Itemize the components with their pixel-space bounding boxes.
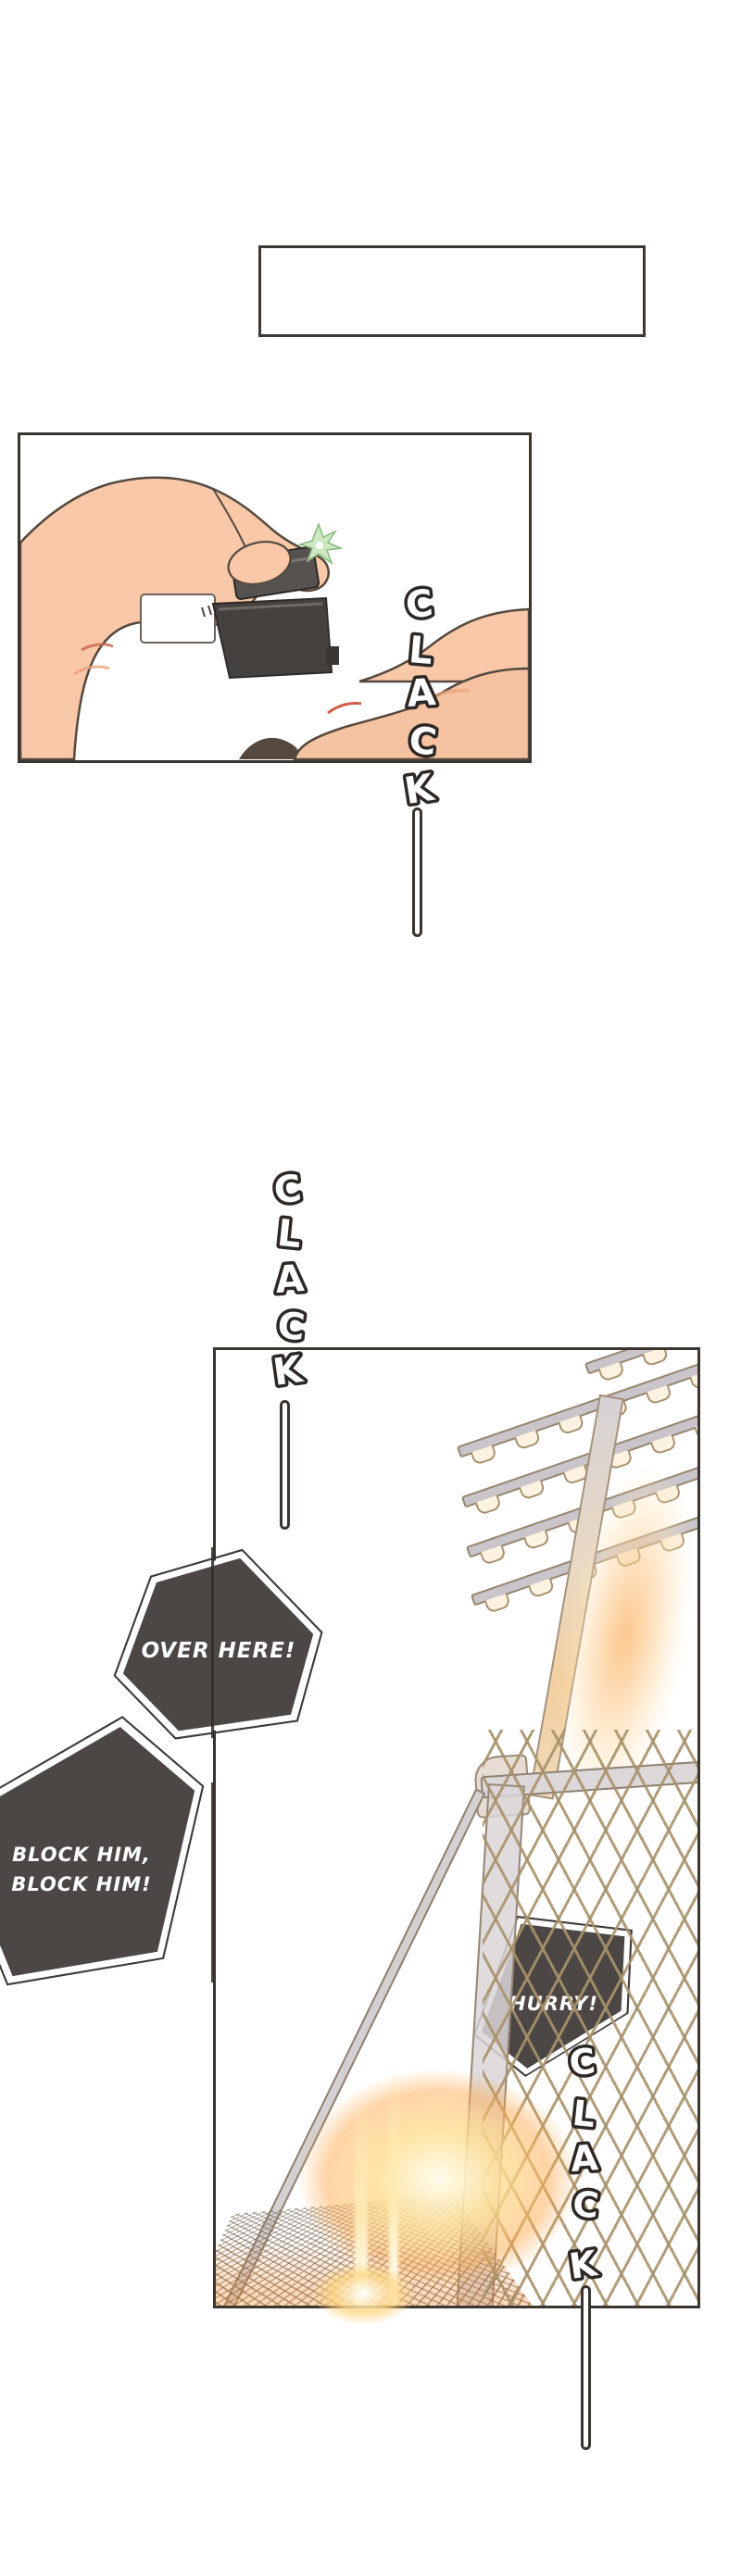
sfx-letter: C — [275, 1305, 307, 1350]
stadium-lamp — [689, 1369, 700, 1391]
hand-shadow — [239, 738, 299, 759]
sfx-letter: L — [571, 2093, 597, 2135]
stadium-lamp — [514, 1430, 541, 1451]
narration-box — [258, 245, 646, 337]
sfx-clack-3: C L A C K — [550, 2037, 615, 2306]
stadium-lamp — [558, 1415, 584, 1436]
sfx-letter: K — [270, 1348, 307, 1394]
sfx-tail-line — [280, 1400, 290, 1530]
sfx-letter: A — [570, 2137, 600, 2180]
panel-lighter-hand — [18, 432, 532, 763]
stadium-lamp — [480, 1544, 507, 1566]
bubble-text: OVER HERE! — [142, 1639, 296, 1663]
sfx-letter: C — [568, 2041, 597, 2084]
sfx-letter: C — [404, 582, 435, 628]
sfx-letter: C — [571, 2183, 600, 2227]
panel-border-line — [211, 1547, 214, 1738]
speech-bubble-over-here: OVER HERE! — [109, 1544, 327, 1744]
sfx-clack-1: C L A C K — [387, 576, 452, 826]
lighter-nub — [326, 646, 339, 665]
webtoon-page: { "page": { "width": 800, "height": 2782… — [0, 0, 741, 2576]
glow-over-border — [295, 2252, 433, 2335]
sfx-letter: C — [271, 1167, 304, 1212]
sfx-clack-2: C L A C K — [256, 1162, 320, 1412]
stadium-lamp — [475, 1494, 502, 1516]
stadium-lamp — [523, 1530, 550, 1551]
sfx-tail-line — [581, 2285, 591, 2450]
stadium-lamp — [528, 1578, 555, 1599]
sfx-letter: A — [274, 1257, 306, 1302]
bubble-text: BLOCK HIM, — [12, 1844, 151, 1866]
stadium-lamp — [484, 1593, 511, 1614]
sfx-letter: A — [406, 671, 437, 716]
lighter-body — [213, 598, 332, 678]
lighter-white-part — [141, 594, 215, 643]
panel-border-line — [211, 1782, 214, 1982]
spark-core — [316, 542, 323, 549]
sfx-letter: L — [408, 629, 434, 673]
stadium-lamp — [650, 1434, 677, 1456]
stadium-lamp — [519, 1480, 546, 1501]
stadium-lamp — [698, 1469, 700, 1491]
stadium-lamp — [694, 1419, 700, 1441]
sfx-letter: L — [275, 1212, 303, 1257]
stadium-lamp — [642, 1347, 669, 1368]
lighter-hand-art — [20, 435, 529, 760]
sfx-tail-line — [412, 807, 422, 937]
sfx-letter: K — [567, 2243, 601, 2287]
stadium-lamp — [646, 1384, 672, 1406]
speech-bubble-block-him: BLOCK HIM, BLOCK HIM! — [0, 1718, 208, 1986]
stadium-lamp — [598, 1361, 625, 1382]
sfx-letter: C — [407, 719, 439, 764]
wrist-crease — [328, 703, 361, 713]
stadium-lamp — [685, 1347, 700, 1352]
stadium-lamp — [471, 1444, 497, 1466]
bubble-text: BLOCK HIM! — [11, 1873, 151, 1895]
sfx-letter: K — [402, 767, 439, 814]
